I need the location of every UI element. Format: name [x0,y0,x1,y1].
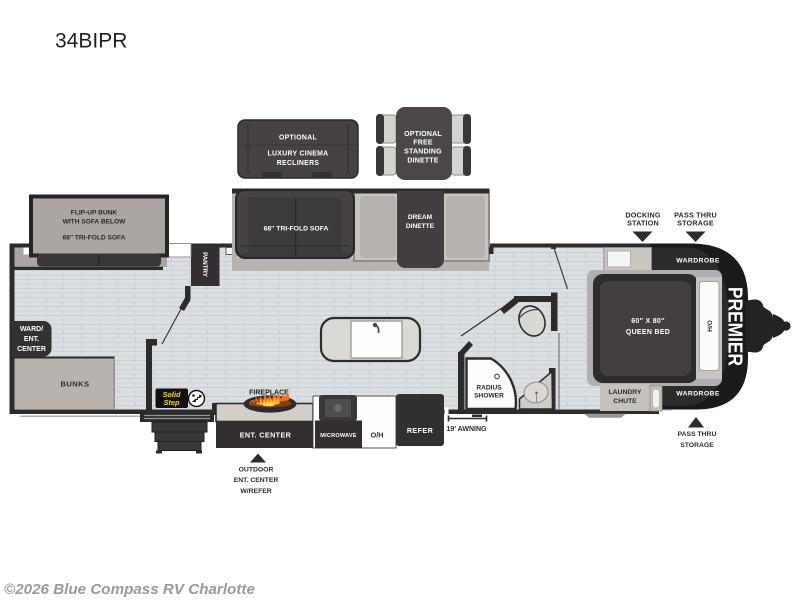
svg-text:34BIPR: 34BIPR [55,30,127,53]
svg-text:DREAM: DREAM [408,214,433,221]
svg-text:DINETTE: DINETTE [407,158,438,165]
svg-text:STANDING: STANDING [404,149,442,156]
svg-text:FREE: FREE [413,140,433,147]
svg-text:BUNKS: BUNKS [60,380,89,389]
svg-text:SHOWER: SHOWER [474,393,504,400]
svg-text:ENT.: ENT. [24,336,39,343]
svg-text:68″ TRI-FOLD SOFA: 68″ TRI-FOLD SOFA [264,226,329,233]
svg-text:PREMIER: PREMIER [724,287,746,366]
svg-text:STATION: STATION [627,219,659,228]
svg-text:W/REFER: W/REFER [240,488,271,495]
svg-text:REFER: REFER [407,426,434,435]
svg-text:ENT. CENTER: ENT. CENTER [234,477,279,484]
svg-text:STORAGE: STORAGE [677,219,714,228]
svg-text:FLIP-UP BUNK: FLIP-UP BUNK [71,210,118,217]
svg-text:60″ X 80″: 60″ X 80″ [631,318,665,325]
svg-text:PASS THRU: PASS THRU [678,431,717,438]
svg-text:QUEEN BED: QUEEN BED [626,329,670,336]
svg-text:19′ AWNING: 19′ AWNING [447,426,487,433]
svg-text:RECLINERS: RECLINERS [277,160,320,167]
svg-text:STORAGE: STORAGE [680,442,714,449]
svg-text:CHUTE: CHUTE [613,398,637,405]
svg-text:LUXURY CINEMA: LUXURY CINEMA [268,151,329,158]
svg-text:WARDROBE: WARDROBE [676,391,720,398]
svg-text:WARDROBE: WARDROBE [676,258,720,265]
svg-text:MICROWAVE: MICROWAVE [320,433,357,439]
svg-text:PANTRY: PANTRY [201,252,208,278]
svg-text:WARD/: WARD/ [20,326,43,333]
svg-text:LAUNDRY: LAUNDRY [609,389,642,396]
svg-text:68″ TRI-FOLD SOFA: 68″ TRI-FOLD SOFA [63,235,126,242]
svg-text:H/O: H/O [707,320,714,332]
svg-text:CENTER: CENTER [17,346,46,353]
svg-text:WITH SOFA BELOW: WITH SOFA BELOW [63,219,127,226]
svg-text:Step: Step [163,398,180,407]
svg-text:DINETTE: DINETTE [406,223,435,230]
svg-text:RADIUS: RADIUS [476,385,502,392]
svg-text:ENT. CENTER: ENT. CENTER [240,431,292,440]
svg-text:O/H: O/H [371,431,384,440]
svg-text:OUTDOOR: OUTDOOR [239,467,274,474]
svg-text:OPTIONAL: OPTIONAL [279,135,317,142]
svg-text:OPTIONAL: OPTIONAL [404,131,442,138]
svg-text:©2026 Blue Compass RV Charlott: ©2026 Blue Compass RV Charlotte [4,581,255,598]
